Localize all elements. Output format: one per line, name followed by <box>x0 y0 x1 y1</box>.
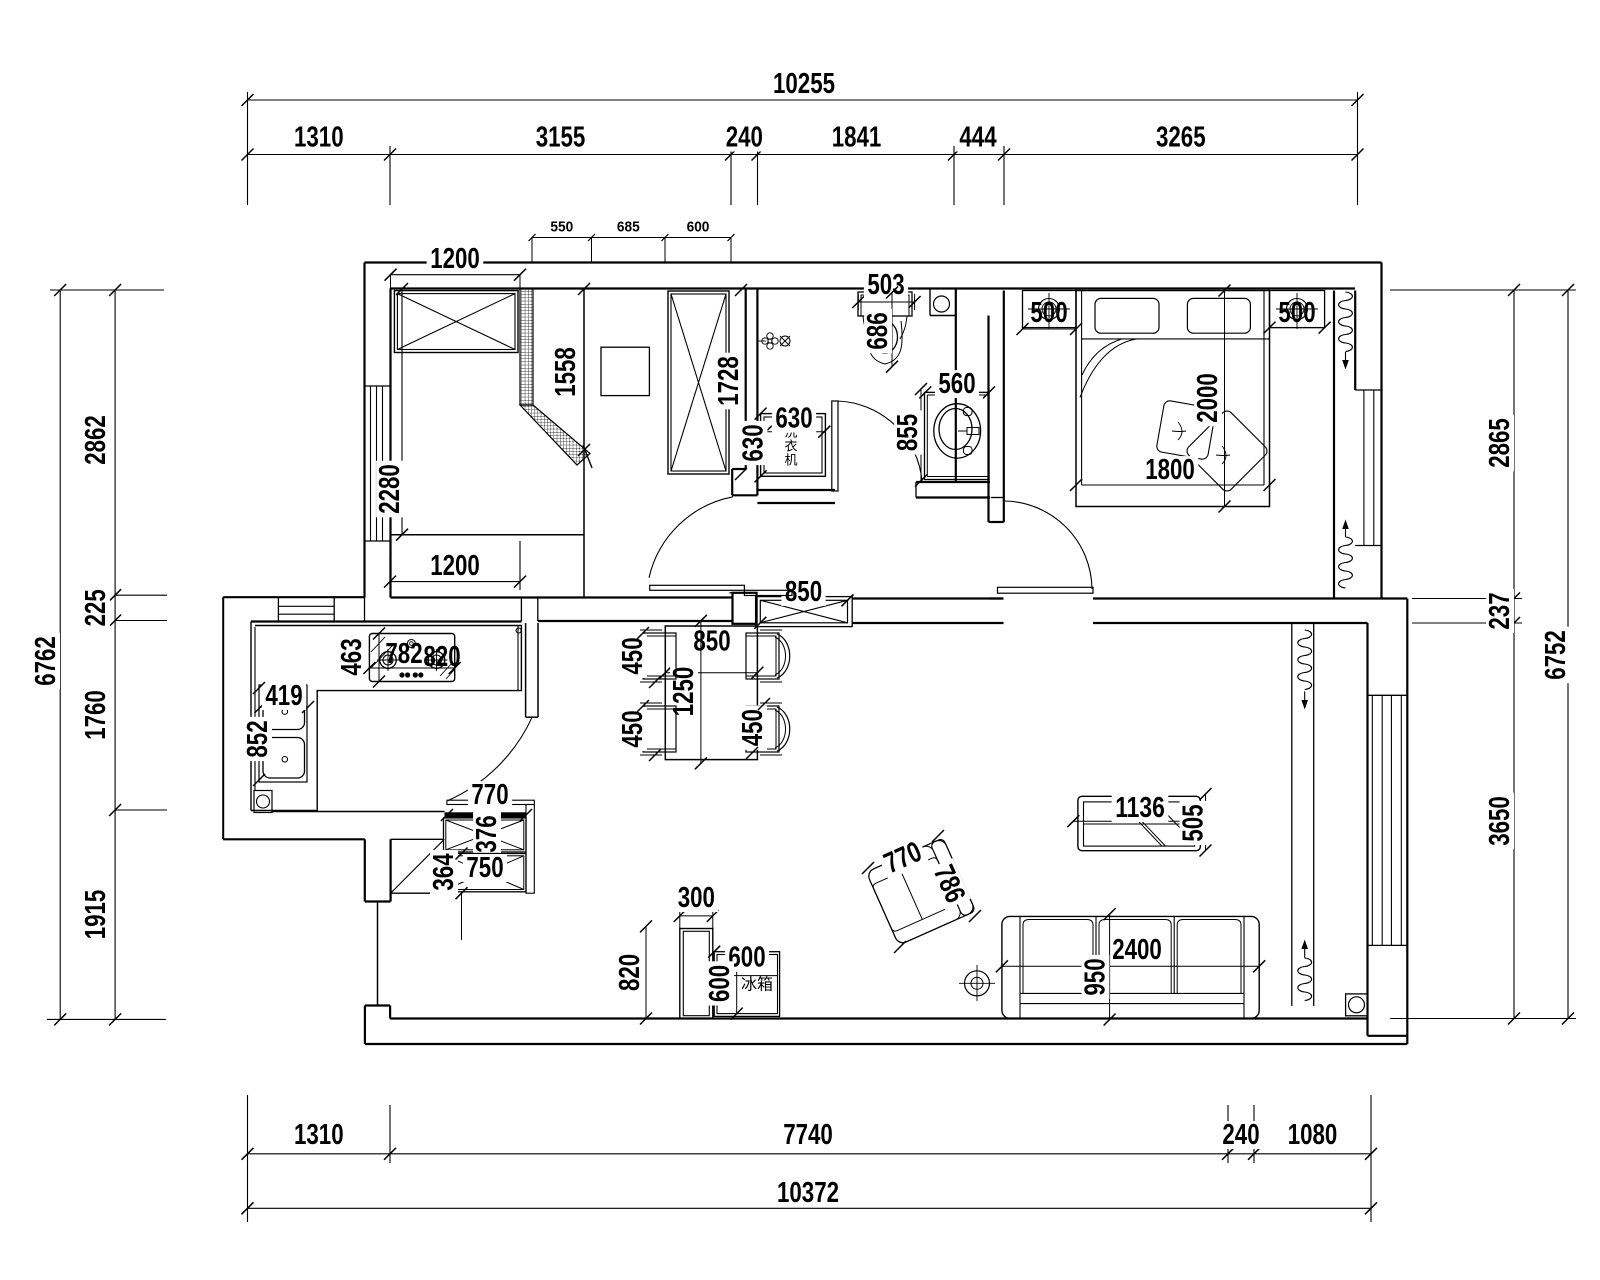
svg-text:10372: 10372 <box>777 1177 839 1209</box>
svg-text:冰箱: 冰箱 <box>741 976 773 994</box>
svg-text:770: 770 <box>471 779 508 811</box>
svg-text:550: 550 <box>550 219 573 236</box>
svg-text:855: 855 <box>892 414 924 451</box>
svg-text:630: 630 <box>738 424 770 461</box>
svg-text:3155: 3155 <box>536 122 586 154</box>
svg-text:376: 376 <box>471 815 503 852</box>
svg-text:419: 419 <box>265 680 302 712</box>
svg-text:950: 950 <box>1079 958 1111 995</box>
svg-text:7740: 7740 <box>783 1119 833 1151</box>
svg-text:237: 237 <box>1484 592 1516 629</box>
svg-text:505: 505 <box>1178 804 1210 841</box>
svg-text:1558: 1558 <box>550 347 582 397</box>
svg-text:685: 685 <box>617 219 640 236</box>
svg-text:3650: 3650 <box>1484 796 1516 846</box>
svg-text:2862: 2862 <box>80 415 112 465</box>
svg-text:3265: 3265 <box>1156 122 1206 154</box>
svg-text:1800: 1800 <box>1145 454 1195 486</box>
svg-text:503: 503 <box>867 269 904 301</box>
svg-text:600: 600 <box>704 965 736 1002</box>
svg-text:1310: 1310 <box>294 122 344 154</box>
svg-text:2000: 2000 <box>1192 373 1224 423</box>
svg-text:500: 500 <box>1278 297 1315 329</box>
svg-text:444: 444 <box>959 122 996 154</box>
svg-text:1200: 1200 <box>430 243 480 275</box>
svg-text:240: 240 <box>726 122 763 154</box>
svg-text:6752: 6752 <box>1540 630 1572 680</box>
svg-text:750: 750 <box>466 852 503 884</box>
svg-text:450: 450 <box>737 709 769 746</box>
svg-text:560: 560 <box>938 368 975 400</box>
svg-text:1310: 1310 <box>294 1119 344 1151</box>
svg-text:1200: 1200 <box>430 550 480 582</box>
svg-text:450: 450 <box>617 710 649 747</box>
svg-text:衣: 衣 <box>784 439 797 454</box>
svg-text:240: 240 <box>1222 1119 1259 1151</box>
svg-text:10255: 10255 <box>773 68 835 100</box>
svg-text:450: 450 <box>617 637 649 674</box>
svg-text:852: 852 <box>242 720 274 757</box>
svg-text:2400: 2400 <box>1112 934 1162 966</box>
svg-text:1760: 1760 <box>80 690 112 740</box>
svg-text:2865: 2865 <box>1484 418 1516 468</box>
svg-text:600: 600 <box>687 219 710 236</box>
svg-text:1136: 1136 <box>1115 792 1165 824</box>
svg-text:2280: 2280 <box>374 464 406 514</box>
svg-text:300: 300 <box>678 882 715 914</box>
svg-text:820: 820 <box>423 641 460 673</box>
svg-text:1841: 1841 <box>832 122 882 154</box>
svg-text:630: 630 <box>775 403 812 435</box>
svg-text:1080: 1080 <box>1288 1119 1338 1151</box>
svg-text:686: 686 <box>862 312 894 349</box>
svg-text:820: 820 <box>614 954 646 991</box>
svg-text:1915: 1915 <box>80 890 112 940</box>
svg-text:机: 机 <box>784 453 797 468</box>
svg-text:850: 850 <box>693 626 730 658</box>
svg-text:6762: 6762 <box>30 636 62 686</box>
svg-text:1728: 1728 <box>713 356 745 406</box>
svg-text:463: 463 <box>336 638 368 675</box>
svg-text:850: 850 <box>785 576 822 608</box>
svg-text:782: 782 <box>385 638 422 670</box>
svg-text:225: 225 <box>80 589 112 626</box>
svg-text:500: 500 <box>1030 297 1067 329</box>
